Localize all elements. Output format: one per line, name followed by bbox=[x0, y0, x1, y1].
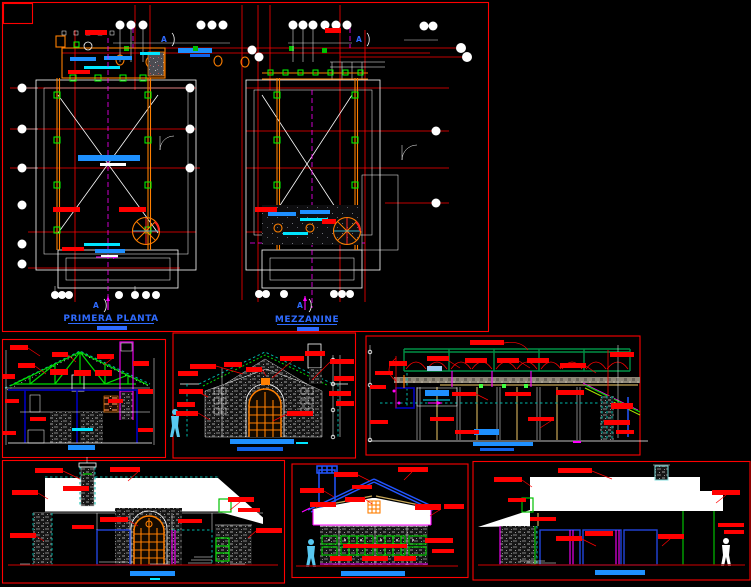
human-figure bbox=[721, 538, 731, 566]
spiral-stair bbox=[334, 218, 361, 245]
steps bbox=[188, 557, 212, 563]
door-swing bbox=[402, 145, 417, 160]
brick-wall bbox=[50, 412, 72, 443]
furniture bbox=[78, 155, 140, 257]
spiral-stair bbox=[133, 218, 160, 245]
chimney bbox=[120, 342, 133, 420]
section-marker-a: A bbox=[161, 35, 167, 44]
plan1-annotations bbox=[53, 30, 146, 251]
plan-primera-planta: PRIMERA PLANTA A A bbox=[36, 28, 196, 330]
axis-leader-symbols bbox=[116, 46, 327, 67]
roof-truss bbox=[10, 352, 148, 386]
floor-slab bbox=[394, 377, 640, 383]
plan2-annotations bbox=[255, 28, 341, 212]
section-marker-a: A bbox=[93, 301, 99, 310]
cad-sheet: PRIMERA PLANTA A A bbox=[0, 0, 751, 587]
panel-floor-plans: PRIMERA PLANTA A A bbox=[3, 3, 489, 332]
brick-pillar bbox=[215, 525, 252, 565]
chimney bbox=[308, 344, 322, 384]
section-marker-a: A bbox=[356, 35, 362, 44]
scale-bar bbox=[473, 442, 533, 446]
scale-bar bbox=[130, 571, 175, 576]
plan1-scale-note bbox=[97, 326, 127, 330]
scale-bar bbox=[68, 445, 95, 450]
chimney bbox=[79, 457, 96, 506]
human-figure bbox=[306, 539, 316, 567]
sheet-corner-tab bbox=[4, 4, 33, 24]
scale-bar bbox=[341, 571, 405, 576]
panel-section-longitudinal bbox=[366, 336, 648, 455]
plan2-scale-note bbox=[297, 327, 319, 331]
note-highlight bbox=[427, 366, 442, 371]
panel-rear-elevation bbox=[292, 464, 468, 578]
panel-side-elevation bbox=[473, 462, 750, 581]
panel-section-transversal bbox=[3, 340, 166, 458]
fireplace bbox=[72, 375, 84, 391]
panel-front-elevation bbox=[170, 333, 356, 458]
brick-pillar bbox=[33, 513, 52, 565]
scale-bar bbox=[595, 570, 645, 575]
panel-main-elevation bbox=[3, 457, 285, 583]
roof-band bbox=[530, 477, 723, 511]
cad-canvas: PRIMERA PLANTA A A bbox=[0, 0, 751, 587]
plan-mezzanine: MEZZANINE A A bbox=[246, 28, 417, 331]
chimney bbox=[653, 465, 670, 480]
brick-pillar bbox=[500, 526, 537, 565]
plan1-title: PRIMERA PLANTA bbox=[63, 314, 158, 324]
door-swing bbox=[160, 136, 174, 150]
keystone bbox=[261, 378, 270, 385]
grid-lines bbox=[10, 5, 462, 302]
plan2-title: MEZZANINE bbox=[275, 315, 339, 325]
ground-bar bbox=[230, 439, 294, 444]
section-marker-a: A bbox=[297, 301, 303, 310]
